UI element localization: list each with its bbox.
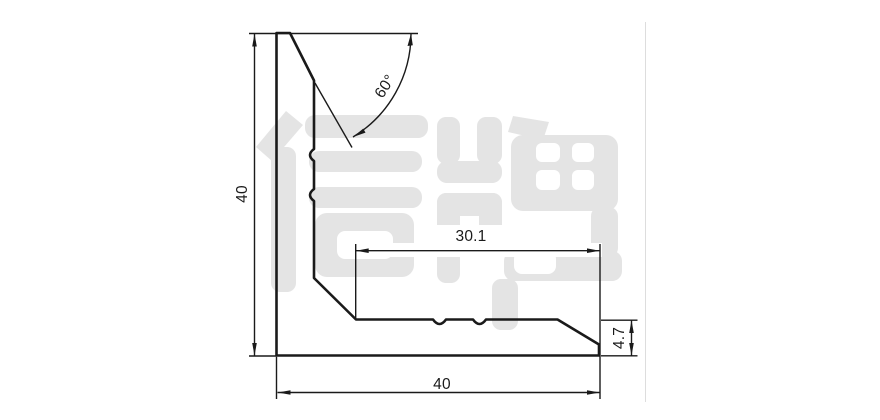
cad-canvas: 40 40 30.1 4.7 60°: [0, 0, 880, 420]
arrow-angle-top: [408, 34, 413, 46]
arrow-thickness-bottom: [629, 343, 634, 356]
arrow-height-top: [252, 34, 257, 47]
arrow-width-right: [587, 390, 600, 395]
cad-sheet: 40 40 30.1 4.7 60°: [0, 0, 880, 420]
arrow-height-bottom: [252, 343, 257, 356]
flange-dim-label: 30.1: [456, 228, 487, 245]
arrow-thickness-top: [629, 320, 634, 333]
arrow-width-left: [278, 390, 291, 395]
angle-dim-label: 60°: [372, 72, 399, 101]
height-dim-label: 40: [234, 185, 251, 203]
width-dim-label: 40: [433, 376, 451, 393]
watermark-char-xin: [256, 111, 428, 292]
thickness-dim-label: 4.7: [611, 327, 628, 349]
